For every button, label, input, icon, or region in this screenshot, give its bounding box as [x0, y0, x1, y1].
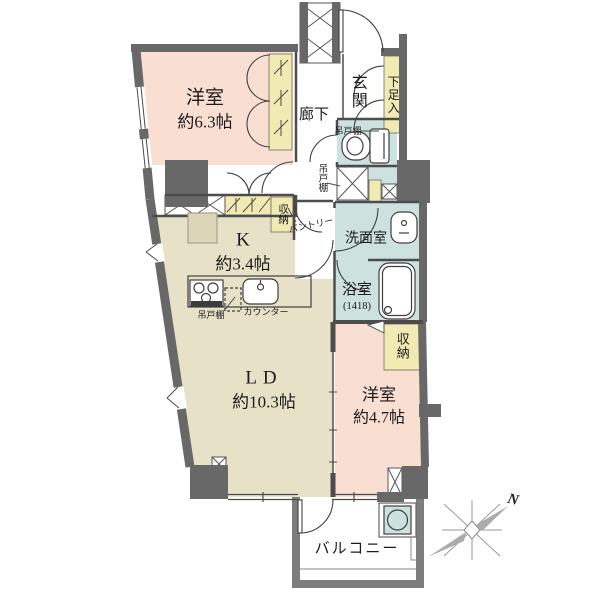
bedroom-main-door-arc — [262, 162, 293, 193]
pillar-bottom-left — [190, 465, 228, 499]
washroom-label: 洗面室 — [345, 231, 387, 250]
pillar-right-mid — [397, 160, 430, 203]
small-storage-box — [369, 180, 381, 202]
stove-icon — [190, 280, 223, 307]
hanging-cupboard-toilet-label: 吊戸棚 — [334, 125, 361, 137]
toilet-door-arc — [310, 135, 337, 162]
room-size: 約10.3帖 — [232, 391, 296, 414]
counter-label: カウンター — [243, 306, 288, 318]
compass-icon — [428, 500, 508, 560]
room-size: 約6.3帖 — [177, 111, 232, 134]
bath-side-storage-label: 収納 — [393, 332, 411, 360]
room-name: 洋室 — [353, 385, 405, 408]
bedroom-second-label: 洋室 約4.7帖 — [353, 385, 405, 430]
shaft-wall-left — [300, 2, 308, 63]
bathtub-icon — [379, 263, 415, 319]
fridge-space — [188, 213, 217, 243]
right-wall-step — [419, 404, 441, 417]
kitchen-label: K 約3.4帖 — [215, 228, 270, 277]
bathroom-label: 浴室 (1418) — [342, 280, 372, 314]
bedroom-main-label: 洋室 約6.3帖 — [177, 86, 232, 135]
entrance-door-leaf — [339, 10, 343, 52]
room-name: 洋室 — [177, 86, 232, 112]
washbasin-icon — [391, 212, 417, 243]
band-closet-doors — [227, 173, 271, 195]
shoe-cabinet-label: 下足入 — [385, 76, 401, 115]
room-size: 約4.7帖 — [353, 408, 405, 430]
hanging-cupboard-kitchen-label: 吊戸棚 — [197, 309, 224, 321]
hallway-label: 廊下 — [299, 105, 329, 125]
balcony-door-arc — [300, 500, 333, 533]
top-wall — [131, 44, 298, 52]
kitchen-storage-label: 収納 — [275, 204, 289, 225]
pantry-zone — [295, 201, 333, 279]
floor-plan-drawing — [0, 0, 600, 600]
pillar-left — [165, 160, 208, 207]
kitchen-sink-icon — [243, 279, 278, 304]
floor-plan: 洋室 約6.3帖 廊下 玄関 下足入 吊戸棚 吊戸棚 K 約3.4帖 吊戸棚 カ… — [0, 0, 600, 600]
pillar-bottom-right — [402, 466, 428, 499]
balcony-label: バルコニー — [315, 539, 400, 559]
room-name: LD — [232, 366, 296, 392]
room-name: 浴室 — [342, 280, 372, 300]
entrance-label: 玄関 — [346, 74, 368, 110]
entrance-door-arc — [341, 10, 383, 52]
room-size: (1418) — [342, 300, 372, 314]
balcony-door-leaf — [298, 500, 302, 533]
room-name: K — [215, 228, 270, 254]
hanging-cupboard-hall-label: 吊戸棚 — [315, 164, 328, 193]
living-dining-label: LD 約10.3帖 — [232, 366, 296, 415]
room-size: 約3.4帖 — [215, 253, 270, 276]
